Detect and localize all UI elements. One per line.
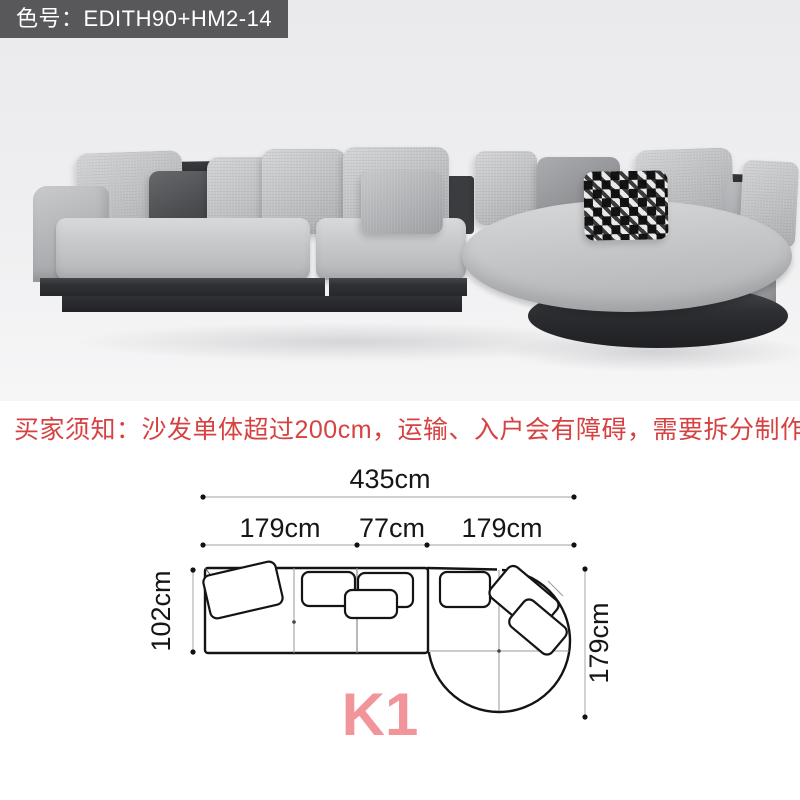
segment-label-1: 179cm — [239, 513, 320, 543]
total-width-label: 435cm — [349, 464, 430, 494]
dim-dot — [190, 567, 195, 572]
dim-dot — [190, 649, 195, 654]
model-label: K1 — [342, 681, 419, 748]
plan-pillow-front — [345, 590, 397, 618]
seat-cushion-left — [56, 218, 310, 280]
pillow-front-center — [361, 171, 443, 234]
sofa-photo: 色号：EDITH90+HM2-14 — [0, 0, 800, 401]
dim-dot — [571, 542, 576, 547]
dim-dot — [582, 566, 587, 571]
dim-dot — [200, 494, 205, 499]
dim-dot — [200, 542, 205, 547]
segment-label-2: 77cm — [359, 513, 425, 543]
segment-label-3: 179cm — [461, 513, 542, 543]
plinth-recessed — [62, 296, 462, 312]
dimension-diagram: 435cm 179cm 77cm 179cm 102cm 179cm — [150, 450, 650, 760]
plan-pillow — [440, 572, 490, 607]
dim-dot — [571, 494, 576, 499]
dim-dot — [354, 542, 359, 547]
dim-dot — [424, 542, 429, 547]
plan-top-edge — [427, 568, 497, 570]
buyer-notice-text: 买家须知：沙发单体超过200cm，运输、入户会有障碍，需要拆分制作 — [14, 410, 786, 446]
left-depth-label: 102cm — [150, 570, 176, 651]
plan-tuft-dot — [497, 649, 501, 653]
plinth-left — [40, 278, 325, 296]
right-depth-label: 179cm — [584, 602, 614, 683]
pillow-houndstooth — [583, 170, 668, 240]
plinth-middle — [329, 278, 467, 296]
plan-tuft-dot — [292, 620, 296, 624]
color-code-badge: 色号：EDITH90+HM2-14 — [0, 0, 288, 38]
dim-dot — [582, 714, 587, 719]
product-image-page: 色号：EDITH90+HM2-14 买家须知：沙发单体超过200cm，运输、入户… — [0, 0, 800, 800]
